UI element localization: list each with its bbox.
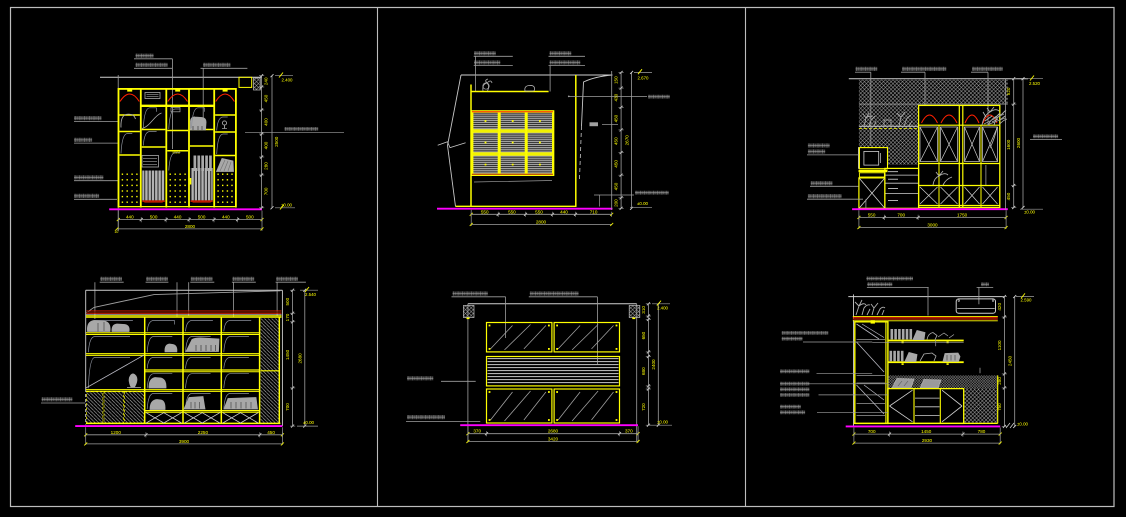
svg-text:2.400: 2.400 [282,78,294,83]
svg-text:420: 420 [997,303,1002,311]
svg-text:240: 240 [264,77,269,85]
svg-text:700: 700 [285,403,290,411]
svg-text:2.520: 2.520 [1029,81,1041,86]
svg-text:700: 700 [897,212,905,217]
svg-text:1200: 1200 [111,430,122,435]
svg-text:700: 700 [264,187,269,195]
svg-text:2.540: 2.540 [305,292,317,297]
svg-text:2250: 2250 [198,430,209,435]
svg-text:3420: 3420 [548,437,559,442]
svg-text:550: 550 [868,212,876,217]
svg-text:440: 440 [560,209,568,214]
svg-text:450: 450 [614,114,619,122]
svg-text:520: 520 [1006,87,1011,95]
svg-text:710: 710 [590,209,598,214]
svg-text:450: 450 [264,94,269,102]
svg-text:2.590: 2.590 [1021,297,1033,302]
svg-text:450: 450 [614,137,619,145]
svg-text:2600: 2600 [1016,137,1021,148]
svg-text:650: 650 [641,331,646,339]
svg-text:700: 700 [868,429,876,434]
svg-text:500: 500 [150,215,158,220]
svg-text:±0.00: ±0.00 [637,201,649,206]
svg-text:500: 500 [285,297,290,305]
svg-text:2800: 2800 [536,219,547,224]
svg-text:±0.00: ±0.00 [303,420,315,425]
svg-text:400: 400 [264,118,269,126]
svg-text:±0.00: ±0.00 [1017,421,1029,426]
svg-text:150: 150 [614,76,619,84]
svg-text:1450: 1450 [285,349,290,360]
svg-text:370: 370 [625,429,633,434]
svg-text:3900: 3900 [179,439,190,444]
svg-text:3000: 3000 [927,223,938,228]
svg-text:370: 370 [473,429,481,434]
svg-text:10: 10 [114,230,118,234]
svg-text:550: 550 [535,209,543,214]
svg-text:1600: 1600 [1006,139,1011,150]
svg-text:280: 280 [264,162,269,170]
svg-text:550: 550 [508,209,516,214]
svg-text:B8B: B8B [173,150,181,155]
svg-text:680: 680 [641,367,646,375]
svg-text:440: 440 [126,215,134,220]
svg-text:2400: 2400 [651,359,656,370]
svg-text:550: 550 [481,209,489,214]
svg-text:2.400: 2.400 [657,306,669,311]
svg-text:1100: 1100 [997,340,1002,350]
svg-text:280: 280 [997,377,1002,385]
svg-text:1450: 1450 [921,429,932,434]
svg-text:400: 400 [264,141,269,149]
svg-text:450: 450 [614,160,619,168]
svg-text:2500: 2500 [274,136,279,147]
svg-text:450: 450 [267,430,275,435]
svg-text:430: 430 [614,93,619,101]
svg-text:2670: 2670 [624,135,629,146]
svg-text:2.670: 2.670 [638,75,650,80]
svg-text:2800: 2800 [185,224,196,229]
svg-text:500: 500 [246,215,254,220]
svg-text:2930: 2930 [922,438,933,443]
svg-text:440: 440 [222,215,230,220]
svg-text:780: 780 [978,429,986,434]
svg-text:±0.00: ±0.00 [1024,209,1036,214]
svg-text:±0.00: ±0.00 [657,419,669,424]
svg-text:2680: 2680 [548,429,559,434]
svg-text:450: 450 [614,182,619,190]
svg-text:310: 310 [641,306,646,314]
svg-text:±0.00: ±0.00 [281,202,293,207]
svg-text:500: 500 [198,215,206,220]
svg-text:2680: 2680 [298,353,303,364]
svg-text:1750: 1750 [957,212,968,217]
svg-text:440: 440 [174,215,182,220]
svg-text:200: 200 [614,199,619,207]
svg-text:450: 450 [1006,192,1011,200]
svg-text:750: 750 [997,403,1002,411]
svg-text:2450: 2450 [1008,355,1013,366]
svg-text:720: 720 [641,403,646,411]
svg-text:170: 170 [285,313,290,321]
